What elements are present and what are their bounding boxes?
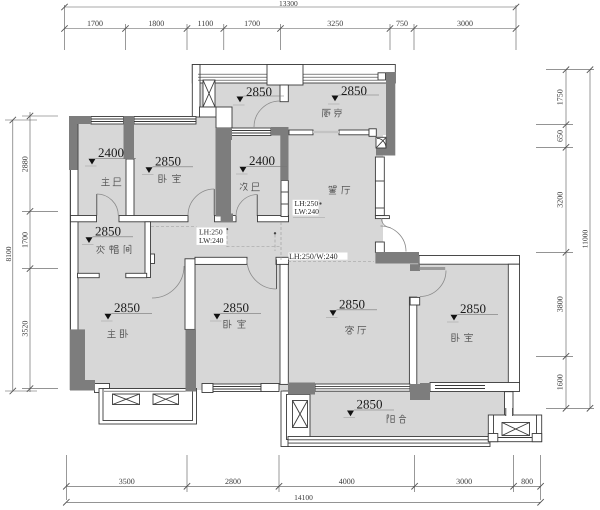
svg-text:8100: 8100	[4, 246, 13, 261]
svg-text:1700: 1700	[21, 232, 30, 248]
svg-text:2850: 2850	[341, 83, 367, 98]
svg-text:LH:250/W:240: LH:250/W:240	[289, 252, 338, 261]
svg-text:1700: 1700	[244, 19, 260, 28]
svg-text:4000: 4000	[339, 477, 355, 486]
svg-text:3800: 3800	[556, 296, 565, 312]
svg-text:3250: 3250	[327, 19, 343, 28]
svg-text:3000: 3000	[457, 19, 473, 28]
svg-text:1700: 1700	[87, 19, 103, 28]
svg-text:2400: 2400	[98, 145, 124, 160]
svg-text:1750: 1750	[556, 89, 565, 105]
svg-text:2850: 2850	[95, 223, 121, 238]
svg-text:2880: 2880	[21, 156, 30, 172]
svg-text:2850: 2850	[357, 397, 383, 412]
svg-text:650: 650	[556, 130, 565, 142]
svg-text:LW:240: LW:240	[295, 207, 320, 216]
svg-text:1100: 1100	[198, 19, 214, 28]
svg-text:13300: 13300	[279, 0, 298, 8]
svg-text:1600: 1600	[556, 374, 565, 390]
svg-text:11000: 11000	[581, 230, 590, 249]
svg-text:LW:240: LW:240	[199, 236, 224, 245]
svg-text:2850: 2850	[155, 153, 181, 168]
svg-text:2850: 2850	[114, 300, 140, 315]
svg-text:3520: 3520	[21, 321, 30, 337]
svg-text:1800: 1800	[148, 19, 164, 28]
svg-text:2850: 2850	[246, 84, 272, 99]
svg-text:800: 800	[521, 477, 533, 486]
svg-text:750: 750	[396, 19, 408, 28]
svg-text:14100: 14100	[294, 493, 313, 502]
svg-text:3000: 3000	[456, 477, 472, 486]
svg-text:2400: 2400	[249, 153, 275, 168]
svg-text:2850: 2850	[460, 301, 486, 316]
svg-text:LH:250: LH:250	[199, 227, 223, 236]
svg-text:2850: 2850	[223, 300, 249, 315]
svg-text:2800: 2800	[225, 477, 241, 486]
svg-text:2850: 2850	[339, 296, 365, 311]
svg-text:3200: 3200	[556, 192, 565, 208]
svg-text:3500: 3500	[119, 477, 135, 486]
